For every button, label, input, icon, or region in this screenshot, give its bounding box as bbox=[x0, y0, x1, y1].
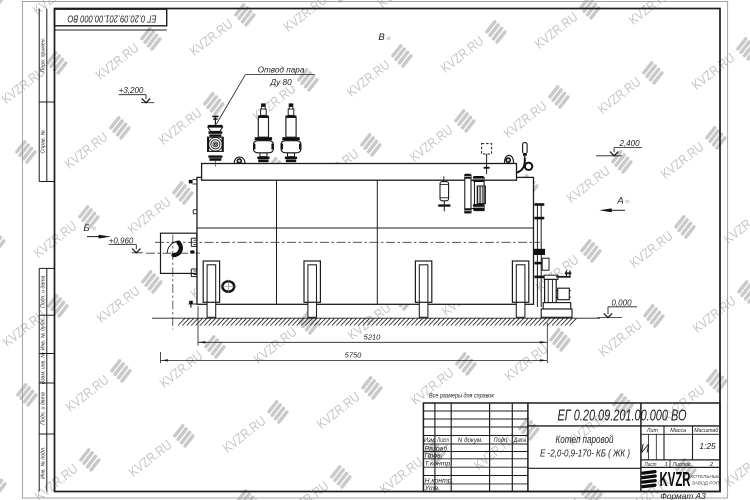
svg-text:Подп.: Подп. bbox=[494, 437, 509, 444]
svg-text:Н.контр.: Н.контр. bbox=[425, 478, 454, 485]
svg-text:А: А bbox=[616, 195, 623, 206]
svg-text:2,400: 2,400 bbox=[619, 139, 641, 148]
svg-text:Дата: Дата bbox=[513, 438, 526, 444]
svg-text:5210: 5210 bbox=[364, 333, 382, 342]
svg-text:1: 1 bbox=[665, 462, 668, 468]
svg-text:Инв. № подл.: Инв. № подл. bbox=[41, 447, 47, 479]
svg-text:1:25: 1:25 bbox=[699, 441, 716, 451]
svg-text:Масштаб: Масштаб bbox=[694, 428, 719, 434]
svg-text:Листов: Листов bbox=[672, 462, 691, 468]
svg-text:И: И bbox=[641, 442, 650, 456]
svg-text:Изм: Изм bbox=[424, 438, 435, 444]
svg-text:KVZR: KVZR bbox=[660, 468, 691, 491]
svg-text:Т.контр.: Т.контр. bbox=[425, 461, 453, 468]
svg-text:+3,200: +3,200 bbox=[119, 86, 144, 95]
svg-text:Разраб.: Разраб. bbox=[425, 444, 450, 452]
svg-text:Ду 80: Ду 80 bbox=[269, 78, 292, 87]
svg-text:В: В bbox=[378, 32, 385, 43]
svg-text:Отвод пара: Отвод пара bbox=[258, 66, 305, 75]
svg-text:Утв.: Утв. bbox=[424, 485, 441, 492]
svg-text:Лит: Лит bbox=[646, 428, 659, 434]
svg-text:Перв. примен.: Перв. примен. bbox=[41, 38, 47, 72]
svg-text:Б: Б bbox=[83, 223, 89, 234]
svg-text:0,000: 0,000 bbox=[612, 298, 633, 307]
svg-text:Пров.: Пров. bbox=[425, 453, 443, 460]
svg-text:Подп. и дата: Подп. и дата bbox=[41, 392, 47, 425]
svg-text:Справ. №: Справ. № bbox=[41, 130, 47, 154]
svg-text:Взам. инв. №: Взам. инв. № bbox=[41, 352, 47, 384]
svg-text:Все размеры для справок: Все размеры для справок bbox=[429, 393, 495, 400]
svg-text:ЕГ 0.20.09.201.00.000 ВО: ЕГ 0.20.09.201.00.000 ВО bbox=[67, 12, 156, 23]
svg-text:Инв. № дубл.: Инв. № дубл. bbox=[41, 318, 47, 350]
svg-text:Лист: Лист bbox=[644, 462, 657, 468]
svg-text:Масса: Масса bbox=[670, 428, 686, 434]
svg-text:Подп. и дата: Подп. и дата bbox=[41, 275, 47, 308]
svg-text:Котел паровой: Котел паровой bbox=[556, 434, 614, 446]
svg-text:N докум.: N докум. bbox=[458, 437, 483, 444]
svg-text:5750: 5750 bbox=[345, 351, 363, 360]
svg-text:Е -2,0-0,9-170- КБ ( ЖК ): Е -2,0-0,9-170- КБ ( ЖК ) bbox=[540, 449, 630, 460]
svg-text:ЕГ 0.20.09.201.00.000 ВО: ЕГ 0.20.09.201.00.000 ВО bbox=[558, 408, 687, 425]
svg-text:ЗАВОД РЭП: ЗАВОД РЭП bbox=[692, 481, 720, 487]
svg-text:Лист: Лист bbox=[436, 438, 449, 444]
svg-text:Формат А3: Формат А3 bbox=[660, 491, 706, 500]
